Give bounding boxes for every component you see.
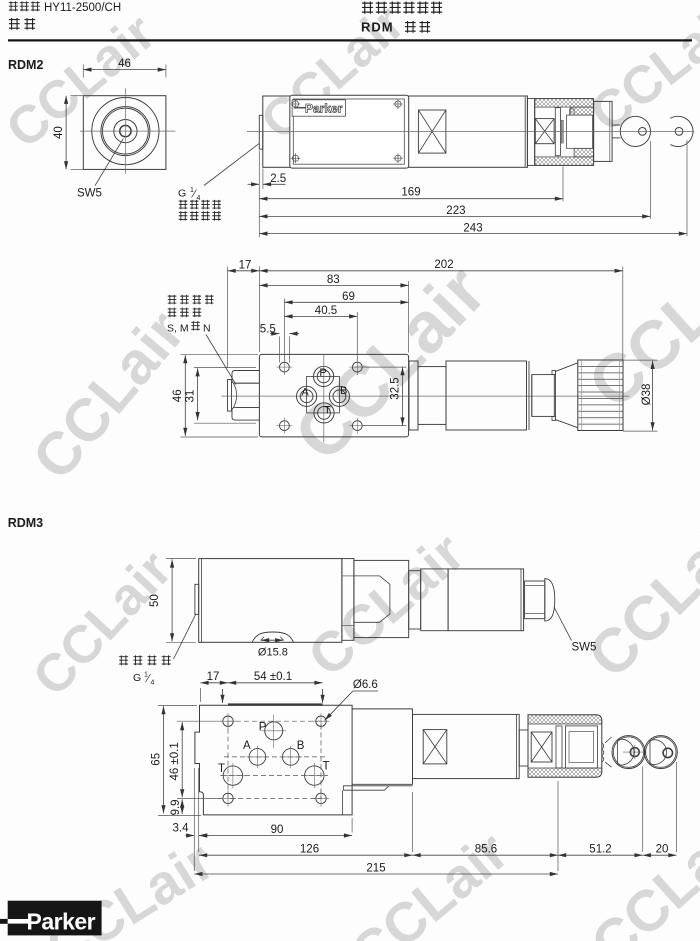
svg-text:A: A [243, 740, 251, 752]
svg-text:T: T [324, 404, 331, 416]
svg-text:N: N [203, 322, 211, 334]
svg-text:RDM3: RDM3 [8, 516, 43, 530]
svg-text:40: 40 [53, 126, 65, 139]
svg-text:32.5: 32.5 [389, 377, 401, 399]
svg-text:31: 31 [185, 390, 197, 403]
svg-text:69: 69 [342, 291, 355, 303]
svg-text:17: 17 [239, 259, 252, 271]
svg-text:169: 169 [401, 187, 420, 199]
svg-text:RDM: RDM [361, 20, 394, 35]
svg-text:Parker: Parker [27, 909, 96, 935]
svg-text:Ø15.8: Ø15.8 [258, 647, 288, 659]
svg-text:54 ±0.1: 54 ±0.1 [254, 671, 292, 683]
svg-text:51.2: 51.2 [589, 844, 611, 856]
svg-text:5.5: 5.5 [260, 324, 276, 336]
svg-text:223: 223 [446, 205, 465, 217]
svg-text:T: T [218, 763, 225, 775]
svg-text:65: 65 [151, 753, 163, 766]
svg-text:Ø38: Ø38 [641, 384, 653, 406]
svg-text:A: A [301, 386, 309, 398]
svg-text:215: 215 [366, 862, 385, 874]
svg-text:46: 46 [118, 58, 131, 70]
svg-text:3.4: 3.4 [173, 823, 190, 835]
svg-text:T: T [323, 760, 330, 772]
svg-text:G: G [178, 188, 186, 200]
svg-text:HY11-2500/CH: HY11-2500/CH [44, 2, 121, 14]
svg-text:1: 1 [144, 672, 148, 679]
svg-text:243: 243 [463, 222, 482, 234]
svg-text:17: 17 [207, 671, 220, 683]
svg-text:Parker: Parker [305, 102, 343, 116]
svg-text:46 ±0.1: 46 ±0.1 [169, 742, 181, 780]
svg-text:S, M: S, M [167, 322, 189, 334]
svg-text:85.6: 85.6 [475, 844, 497, 856]
svg-text:50: 50 [149, 594, 161, 607]
svg-text:40.5: 40.5 [315, 305, 337, 317]
svg-text:B: B [297, 740, 305, 752]
svg-text:90: 90 [271, 824, 284, 836]
svg-text:B: B [340, 385, 347, 397]
svg-text:202: 202 [434, 259, 453, 271]
svg-text:20: 20 [656, 844, 669, 856]
svg-text:2.5: 2.5 [270, 173, 286, 185]
svg-text:RDM2: RDM2 [8, 58, 43, 72]
svg-text:1: 1 [190, 187, 194, 194]
svg-text:83: 83 [327, 274, 340, 286]
svg-text:4: 4 [151, 680, 155, 687]
svg-text:Ø6.6: Ø6.6 [353, 679, 378, 691]
svg-text:46: 46 [172, 389, 184, 402]
svg-text:SW5: SW5 [572, 642, 597, 654]
svg-text:126: 126 [300, 844, 319, 856]
svg-text:9.9: 9.9 [170, 799, 182, 815]
svg-text:G: G [133, 672, 141, 684]
svg-text:SW5: SW5 [77, 187, 102, 199]
svg-text:P: P [259, 722, 267, 734]
svg-text:P: P [319, 367, 326, 379]
